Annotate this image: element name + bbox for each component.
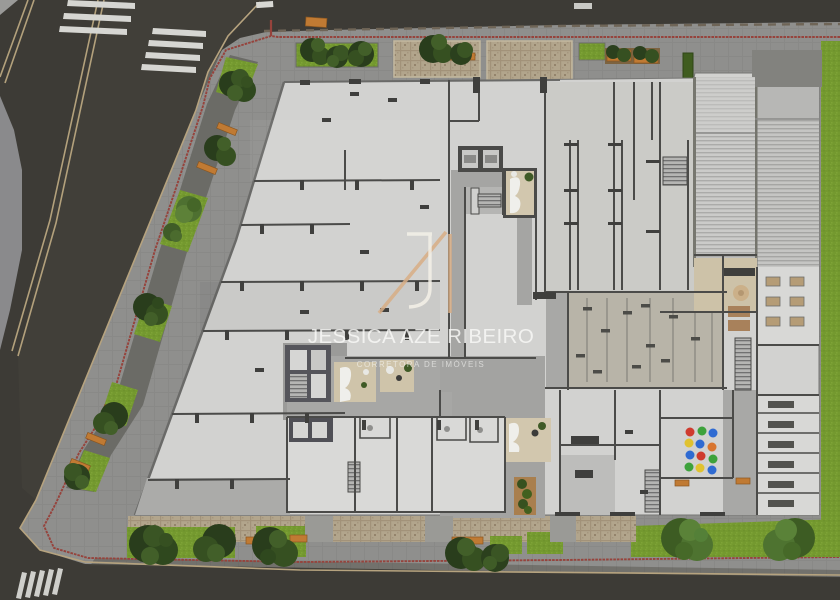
svg-text:CORRETORA DE IMÓVEIS: CORRETORA DE IMÓVEIS [357,360,485,369]
svg-text:JESSICA AZE RIBEIRO: JESSICA AZE RIBEIRO [308,325,534,348]
